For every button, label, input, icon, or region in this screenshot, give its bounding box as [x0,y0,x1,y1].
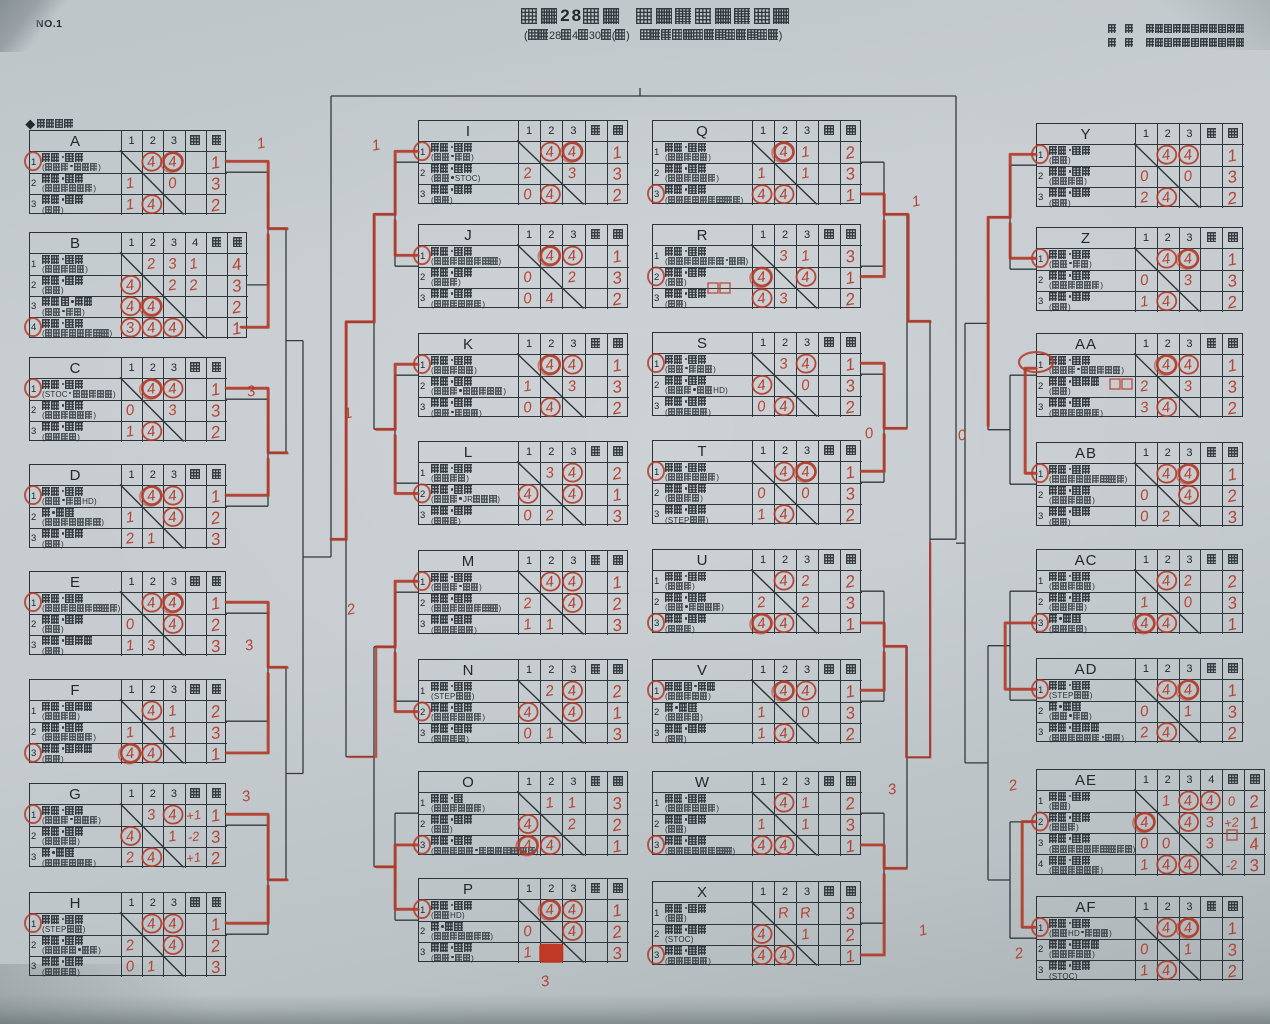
svg-text:4: 4 [1161,399,1172,417]
svg-text:3: 3 [1226,271,1239,291]
svg-text:0: 0 [1183,593,1194,611]
svg-text:4: 4 [567,901,578,919]
svg-text:1: 1 [125,423,136,441]
svg-text:3: 3 [1226,593,1239,613]
svg-text:1: 1 [230,319,243,339]
svg-text:1: 1 [756,704,767,722]
svg-text:2: 2 [843,289,857,310]
svg-text:3: 3 [1226,167,1239,187]
svg-text:1: 1 [209,744,222,764]
svg-text:4: 4 [1161,465,1172,483]
svg-text:2: 2 [208,195,222,216]
svg-text:4: 4 [1161,681,1172,699]
svg-text:0: 0 [1161,835,1172,853]
svg-text:1: 1 [209,153,222,173]
svg-text:4: 4 [544,143,555,161]
svg-text:0: 0 [522,922,533,940]
svg-text:1: 1 [611,143,624,163]
svg-text:4: 4 [1161,615,1172,633]
svg-text:2: 2 [610,681,624,702]
svg-text:3: 3 [1183,377,1194,395]
svg-text:2: 2 [755,593,767,611]
svg-text:1: 1 [209,594,222,614]
svg-text:2: 2 [145,255,157,273]
svg-text:3: 3 [243,636,255,654]
svg-text:4: 4 [522,816,533,834]
svg-text:4: 4 [800,682,811,700]
svg-text:1: 1 [844,268,857,288]
svg-text:4: 4 [146,702,157,720]
svg-text:3: 3 [209,827,222,847]
svg-text:1: 1 [125,637,136,655]
svg-text:2: 2 [610,463,624,484]
svg-text:0: 0 [1183,167,1194,185]
svg-text:4: 4 [756,837,767,855]
svg-text:3: 3 [567,164,578,182]
svg-text:1: 1 [1226,465,1239,485]
svg-text:2: 2 [1160,508,1172,526]
svg-text:2: 2 [566,268,578,286]
svg-text:2: 2 [229,297,243,318]
svg-text:4: 4 [146,423,157,441]
svg-text:1: 1 [167,724,178,742]
svg-text:1: 1 [611,573,624,593]
svg-text:0: 0 [125,958,136,976]
svg-text:4: 4 [567,923,578,941]
svg-text:3: 3 [844,815,857,835]
svg-text:1: 1 [844,946,857,966]
svg-text:4: 4 [778,186,789,204]
svg-text:1: 1 [910,192,922,210]
svg-text:4: 4 [800,268,811,286]
svg-text:3: 3 [844,376,857,396]
svg-text:0: 0 [800,703,811,721]
svg-text:2: 2 [124,936,136,954]
svg-text:+1: +1 [185,849,202,866]
svg-text:4: 4 [567,485,578,503]
svg-text:1: 1 [167,828,178,846]
svg-text:0: 0 [125,615,136,633]
svg-text:0: 0 [522,268,533,286]
svg-text:-2: -2 [187,828,201,845]
svg-text:0: 0 [756,484,767,502]
svg-text:4: 4 [567,595,578,613]
svg-text:1: 1 [1248,813,1261,833]
svg-text:1: 1 [125,196,136,214]
svg-text:4: 4 [1161,250,1172,268]
svg-text:1: 1 [1139,856,1150,874]
svg-text:1: 1 [125,174,136,192]
svg-text:3: 3 [209,957,222,977]
svg-text:3: 3 [1226,377,1239,397]
svg-text:3: 3 [209,636,222,656]
svg-text:2: 2 [610,815,624,836]
svg-text:2: 2 [1225,188,1239,209]
svg-text:4: 4 [1183,356,1194,374]
svg-text:1: 1 [844,463,857,483]
svg-text:2: 2 [843,505,857,526]
svg-text:4: 4 [778,794,789,812]
svg-text:4: 4 [125,298,136,316]
svg-text:1: 1 [756,164,767,182]
svg-text:3: 3 [778,355,789,373]
svg-text:0: 0 [800,484,811,502]
svg-text:1: 1 [146,530,157,548]
svg-text:4: 4 [778,837,789,855]
svg-text:3: 3 [1226,940,1239,960]
svg-text:2: 2 [208,615,222,636]
svg-text:4: 4 [756,947,767,965]
svg-text:4: 4 [756,926,767,944]
svg-text:3: 3 [209,529,222,549]
svg-text:1: 1 [522,616,533,634]
svg-text:1: 1 [146,958,157,976]
svg-text:3: 3 [844,484,857,504]
svg-text:+2: +2 [1223,814,1241,831]
svg-text:3: 3 [778,290,789,308]
svg-text:4: 4 [756,290,767,308]
svg-text:3: 3 [778,247,789,265]
svg-text:4: 4 [1248,834,1261,854]
svg-text:4: 4 [778,398,789,416]
svg-text:3: 3 [611,615,624,635]
svg-text:4: 4 [544,290,555,308]
svg-text:1: 1 [800,926,811,944]
svg-text:1: 1 [255,134,267,152]
svg-text:2: 2 [843,925,857,946]
svg-text:1: 1 [1226,250,1239,270]
svg-text:3: 3 [167,401,178,419]
svg-text:4: 4 [778,615,789,633]
svg-text:2: 2 [610,185,624,206]
svg-text:0: 0 [125,401,136,419]
svg-text:4: 4 [167,616,178,634]
svg-text:0: 0 [1139,167,1150,185]
svg-text:4: 4 [1183,856,1194,874]
svg-text:1: 1 [800,794,811,812]
svg-text:1: 1 [167,702,178,720]
svg-text:0: 0 [1139,702,1150,720]
svg-text:0: 0 [167,174,178,192]
svg-text:3: 3 [544,464,555,482]
svg-text:1: 1 [1226,681,1239,701]
svg-text:4: 4 [567,356,578,374]
svg-text:0: 0 [522,507,533,525]
svg-text:2: 2 [1247,791,1261,812]
svg-text:2: 2 [1138,189,1150,207]
svg-text:3: 3 [240,787,252,805]
svg-text:R: R [777,904,790,922]
svg-text:2: 2 [124,530,136,548]
svg-text:1: 1 [125,509,136,527]
svg-text:3: 3 [1248,855,1261,875]
svg-text:1: 1 [370,136,382,154]
svg-text:4: 4 [1161,724,1172,742]
svg-text:2: 2 [843,793,857,814]
svg-text:2: 2 [208,936,222,957]
svg-text:2: 2 [1225,398,1239,419]
svg-text:4: 4 [1183,486,1194,504]
svg-text:1: 1 [800,143,811,161]
svg-text:4: 4 [1183,146,1194,164]
svg-text:0: 0 [1139,940,1150,958]
svg-text:4: 4 [544,399,555,417]
svg-text:4: 4 [167,509,178,527]
svg-text:2: 2 [843,397,857,418]
svg-text:3: 3 [611,943,624,963]
svg-text:4: 4 [800,355,811,373]
svg-text:2: 2 [344,600,357,619]
svg-text:2: 2 [543,507,555,525]
svg-text:3: 3 [1204,835,1215,853]
svg-text:2: 2 [1138,377,1150,395]
svg-text:4: 4 [146,745,157,763]
svg-text:1: 1 [567,794,578,812]
svg-text:4: 4 [756,376,767,394]
svg-text:1: 1 [611,356,624,376]
svg-text:3: 3 [844,703,857,723]
svg-text:1: 1 [800,164,811,182]
svg-text:1: 1 [844,836,857,856]
svg-text:2: 2 [843,571,857,592]
svg-text:3: 3 [1183,271,1194,289]
svg-text:1: 1 [844,185,857,205]
svg-text:3: 3 [1204,813,1215,831]
svg-text:3: 3 [611,164,624,184]
svg-text:4: 4 [567,682,578,700]
svg-text:3: 3 [167,255,178,273]
svg-text:4: 4 [522,485,533,503]
svg-text:3: 3 [567,377,578,395]
svg-text:0: 0 [956,426,968,444]
svg-text:4: 4 [146,319,157,337]
svg-text:1: 1 [1183,941,1194,959]
svg-text:3: 3 [539,972,551,990]
svg-text:1: 1 [209,806,222,826]
svg-text:4: 4 [1183,814,1194,832]
svg-text:2: 2 [1225,961,1239,982]
svg-text:2: 2 [208,701,222,722]
svg-text:1: 1 [800,247,811,265]
svg-text:2: 2 [566,815,578,833]
svg-text:2: 2 [543,682,555,700]
svg-text:1: 1 [342,404,354,422]
svg-text:+1: +1 [185,807,202,824]
svg-text:1: 1 [917,921,929,939]
svg-text:0: 0 [1227,793,1237,809]
svg-text:1: 1 [209,487,222,507]
svg-text:0: 0 [522,725,533,743]
svg-text:4: 4 [167,915,178,933]
svg-text:4: 4 [544,573,555,591]
svg-text:1: 1 [611,836,624,856]
svg-text:3: 3 [146,637,157,655]
svg-text:4: 4 [1161,293,1172,311]
svg-text:1: 1 [522,377,533,395]
svg-text:3: 3 [886,780,898,798]
svg-text:1: 1 [125,724,136,742]
svg-text:1: 1 [544,725,555,743]
svg-text:4: 4 [567,247,578,265]
svg-text:-2: -2 [1225,857,1239,874]
svg-text:2: 2 [1138,724,1150,742]
svg-text:3: 3 [844,903,857,923]
svg-text:2: 2 [1012,944,1025,963]
svg-text:0: 0 [800,376,811,394]
svg-text:1: 1 [188,255,199,273]
svg-text:2: 2 [843,143,857,164]
svg-text:1: 1 [1139,962,1150,980]
svg-text:4: 4 [146,915,157,933]
svg-text:1: 1 [209,380,222,400]
svg-text:1: 1 [756,506,767,524]
svg-text:1: 1 [844,355,857,375]
svg-text:2: 2 [208,848,222,869]
svg-text:0: 0 [756,398,767,416]
svg-text:0: 0 [1139,508,1150,526]
svg-text:2: 2 [1225,486,1239,507]
svg-text:2: 2 [521,594,533,612]
svg-text:3: 3 [1226,507,1239,527]
svg-text:2: 2 [124,849,136,867]
svg-text:1: 1 [756,816,767,834]
svg-text:0: 0 [1139,486,1150,504]
svg-text:4: 4 [756,186,767,204]
svg-text:4: 4 [1204,792,1215,810]
svg-text:4: 4 [778,947,789,965]
svg-text:4: 4 [146,594,157,612]
svg-text:2: 2 [1006,776,1019,795]
svg-text:1: 1 [611,703,624,723]
svg-text:2: 2 [610,922,624,943]
svg-text:4: 4 [567,573,578,591]
svg-text:1: 1 [756,725,767,743]
svg-text:2: 2 [521,164,533,182]
svg-text:4: 4 [1183,792,1194,810]
svg-text:4: 4 [167,937,178,955]
svg-text:1: 1 [611,485,624,505]
svg-text:2: 2 [799,593,811,611]
svg-text:4: 4 [1161,146,1172,164]
svg-text:3: 3 [125,319,136,337]
svg-text:4: 4 [778,506,789,524]
svg-text:0: 0 [522,399,533,417]
svg-text:1: 1 [1226,614,1239,634]
svg-text:4: 4 [167,319,178,337]
svg-text:1: 1 [522,944,533,962]
svg-text:2: 2 [1225,292,1239,313]
svg-text:2: 2 [610,289,624,310]
svg-text:2: 2 [166,276,178,294]
svg-text:2: 2 [208,508,222,529]
svg-text:1: 1 [844,682,857,702]
svg-text:4: 4 [522,704,533,722]
svg-text:4: 4 [230,255,243,275]
svg-text:2: 2 [610,594,624,615]
svg-text:1: 1 [1226,146,1239,166]
svg-text:2: 2 [610,398,624,419]
svg-text:4: 4 [1161,919,1172,937]
svg-text:2: 2 [1225,571,1239,592]
svg-text:4: 4 [1161,572,1172,590]
svg-text:R: R [799,904,812,922]
svg-text:2: 2 [799,572,811,590]
svg-text:4: 4 [567,464,578,482]
svg-text:3: 3 [146,806,157,824]
svg-text:1: 1 [544,616,555,634]
svg-text:4: 4 [1161,962,1172,980]
svg-text:2: 2 [1182,572,1194,590]
svg-text:4: 4 [167,380,178,398]
svg-text:3: 3 [611,506,624,526]
svg-text:1: 1 [611,247,624,267]
svg-text:2: 2 [208,422,222,443]
svg-text:1: 1 [844,614,857,634]
svg-text:3: 3 [209,401,222,421]
svg-text:0: 0 [863,424,875,442]
svg-text:4: 4 [125,828,136,846]
svg-text:3: 3 [611,793,624,813]
svg-text:0: 0 [1139,271,1150,289]
svg-text:3: 3 [209,723,222,743]
svg-text:2: 2 [1225,723,1239,744]
svg-text:4: 4 [1161,189,1172,207]
svg-text:1: 1 [800,816,811,834]
svg-text:2: 2 [187,276,199,294]
svg-text:3: 3 [611,377,624,397]
svg-text:1: 1 [1226,919,1239,939]
svg-text:4: 4 [544,186,555,204]
svg-text:4: 4 [567,704,578,722]
svg-text:1: 1 [1161,792,1172,810]
svg-text:4: 4 [146,196,157,214]
svg-text:0: 0 [522,186,533,204]
svg-text:3: 3 [844,593,857,613]
svg-text:0: 0 [1139,835,1150,853]
svg-text:1: 1 [611,901,624,921]
svg-text:3: 3 [844,246,857,266]
svg-text:4: 4 [544,837,555,855]
svg-text:3: 3 [1226,702,1239,722]
svg-text:3: 3 [844,164,857,184]
svg-text:1: 1 [1139,293,1150,311]
svg-text:3: 3 [611,268,624,288]
svg-text:4: 4 [167,487,178,505]
svg-text:4: 4 [1161,856,1172,874]
svg-text:0: 0 [522,290,533,308]
svg-text:4: 4 [167,806,178,824]
svg-text:4: 4 [778,572,789,590]
svg-text:1: 1 [1139,594,1150,612]
svg-text:3: 3 [209,174,222,194]
svg-text:1: 1 [1183,703,1194,721]
svg-text:3: 3 [611,724,624,744]
svg-text:2: 2 [843,724,857,745]
svg-text:4: 4 [146,849,157,867]
svg-text:4: 4 [778,463,789,481]
svg-text:1: 1 [1226,356,1239,376]
svg-text:1: 1 [544,794,555,812]
svg-text:4: 4 [146,153,157,171]
svg-text:3: 3 [1139,399,1150,417]
svg-text:3: 3 [230,276,243,296]
svg-text:4: 4 [125,276,136,294]
svg-text:4: 4 [778,725,789,743]
svg-text:3: 3 [245,382,257,400]
svg-text:1: 1 [209,915,222,935]
